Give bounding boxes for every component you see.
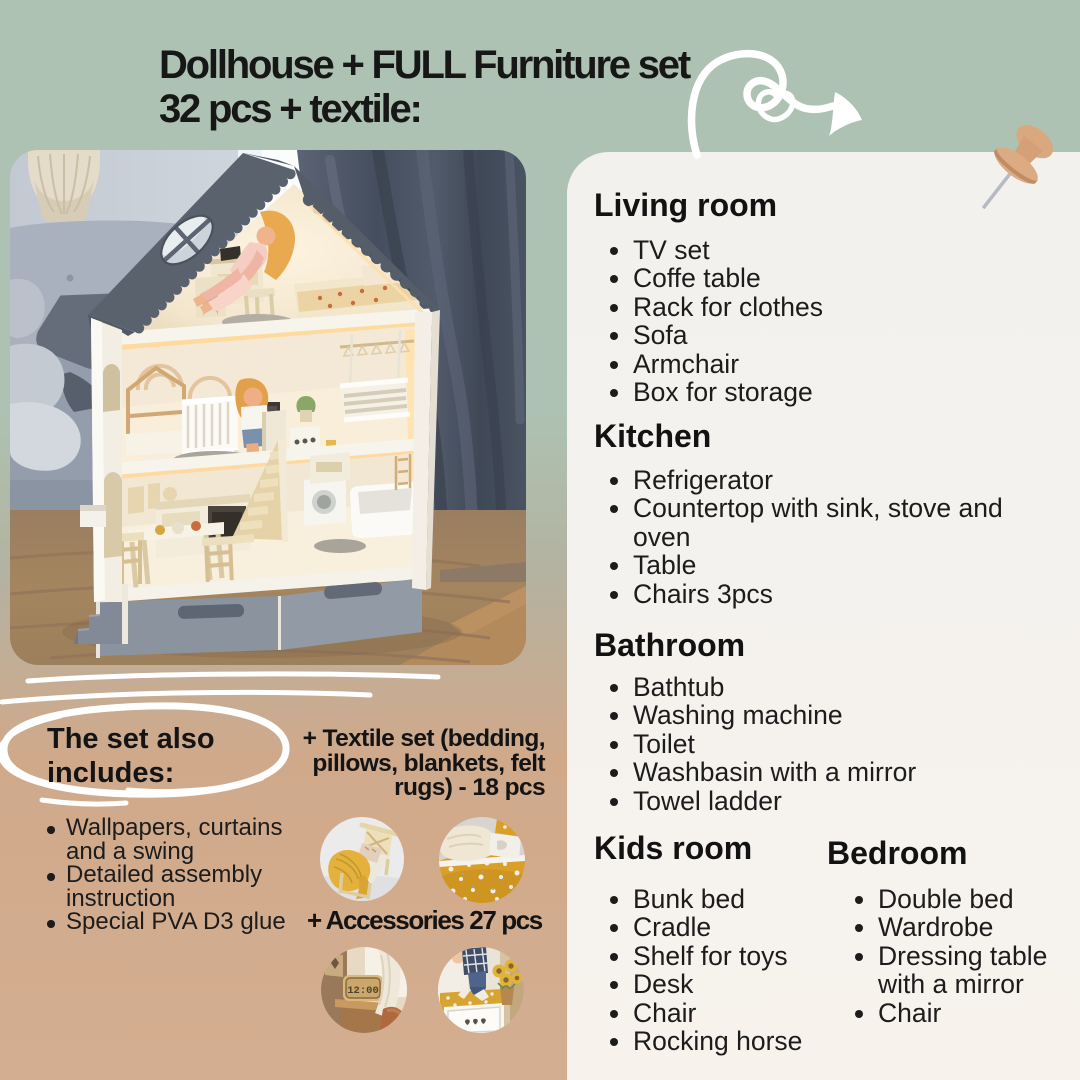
svg-text:12:00: 12:00 bbox=[347, 985, 379, 997]
